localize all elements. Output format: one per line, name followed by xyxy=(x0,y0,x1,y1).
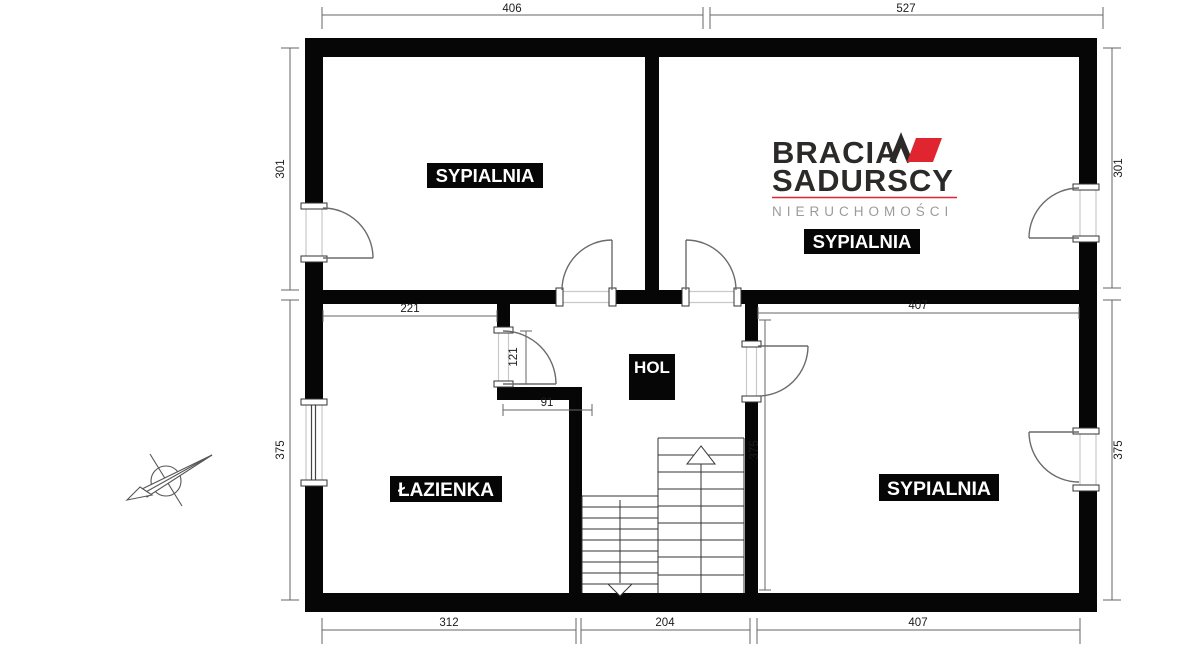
dim-right-375: 375 xyxy=(1113,440,1125,459)
dim-interior-375: 375 xyxy=(749,440,761,459)
room-label-bathroom: ŁAZIENKA xyxy=(390,476,502,502)
dim-bottom-204: 204 xyxy=(655,617,675,629)
floor-plan-canvas: 406 527 301 375 301 375 312 204 407 221 … xyxy=(0,0,1200,648)
room-label-hall: HOL xyxy=(629,354,675,400)
dim-interior-121: 121 xyxy=(508,347,520,366)
door-bedroom1-hall xyxy=(562,240,612,290)
room-label-bedroom-2: SYPIALNIA xyxy=(804,229,920,254)
brand-logo: BRACIA SADURSCY NIERUCHOMOŚCI xyxy=(772,135,957,219)
window-bathroom xyxy=(301,399,327,486)
dim-interior-221: 221 xyxy=(400,303,419,315)
opening-face-lines xyxy=(306,188,1096,487)
svg-text:HOL: HOL xyxy=(634,358,670,377)
dim-right-301: 301 xyxy=(1113,158,1125,177)
room-label-bedroom-1: SYPIALNIA xyxy=(427,163,543,188)
dim-left-375: 375 xyxy=(275,440,287,459)
svg-text:SYPIALNIA: SYPIALNIA xyxy=(887,478,991,500)
door-bedroom2-balcony xyxy=(1029,188,1079,238)
room-label-bedroom-3: SYPIALNIA xyxy=(879,474,999,501)
staircase xyxy=(582,438,744,596)
dim-bottom-312: 312 xyxy=(439,617,458,629)
logo-mark-icon xyxy=(892,138,942,162)
dim-top-406: 406 xyxy=(502,3,521,15)
north-arrow-icon xyxy=(127,454,212,506)
door-bedroom1-balcony xyxy=(323,208,373,258)
dim-left-301: 301 xyxy=(275,159,287,178)
svg-text:SYPIALNIA: SYPIALNIA xyxy=(813,231,912,252)
stairs-down-flight xyxy=(582,496,658,596)
logo-tagline: NIERUCHOMOŚCI xyxy=(772,204,953,219)
dim-top-527: 527 xyxy=(896,3,915,15)
dim-bottom-407: 407 xyxy=(908,617,927,629)
door-bedroom2-hall xyxy=(686,240,736,290)
stairs-up-flight xyxy=(658,438,744,593)
dim-interior-91: 91 xyxy=(541,397,554,409)
dim-interior-407: 407 xyxy=(908,300,927,312)
door-bedroom3-balcony xyxy=(1029,432,1079,482)
floor-plan-page: 406 527 301 375 301 375 312 204 407 221 … xyxy=(0,0,1200,648)
svg-text:SYPIALNIA: SYPIALNIA xyxy=(436,165,535,186)
svg-text:ŁAZIENKA: ŁAZIENKA xyxy=(398,480,494,501)
logo-brand-line2: SADURSCY xyxy=(772,163,954,198)
door-jamb-caps xyxy=(301,184,1099,491)
